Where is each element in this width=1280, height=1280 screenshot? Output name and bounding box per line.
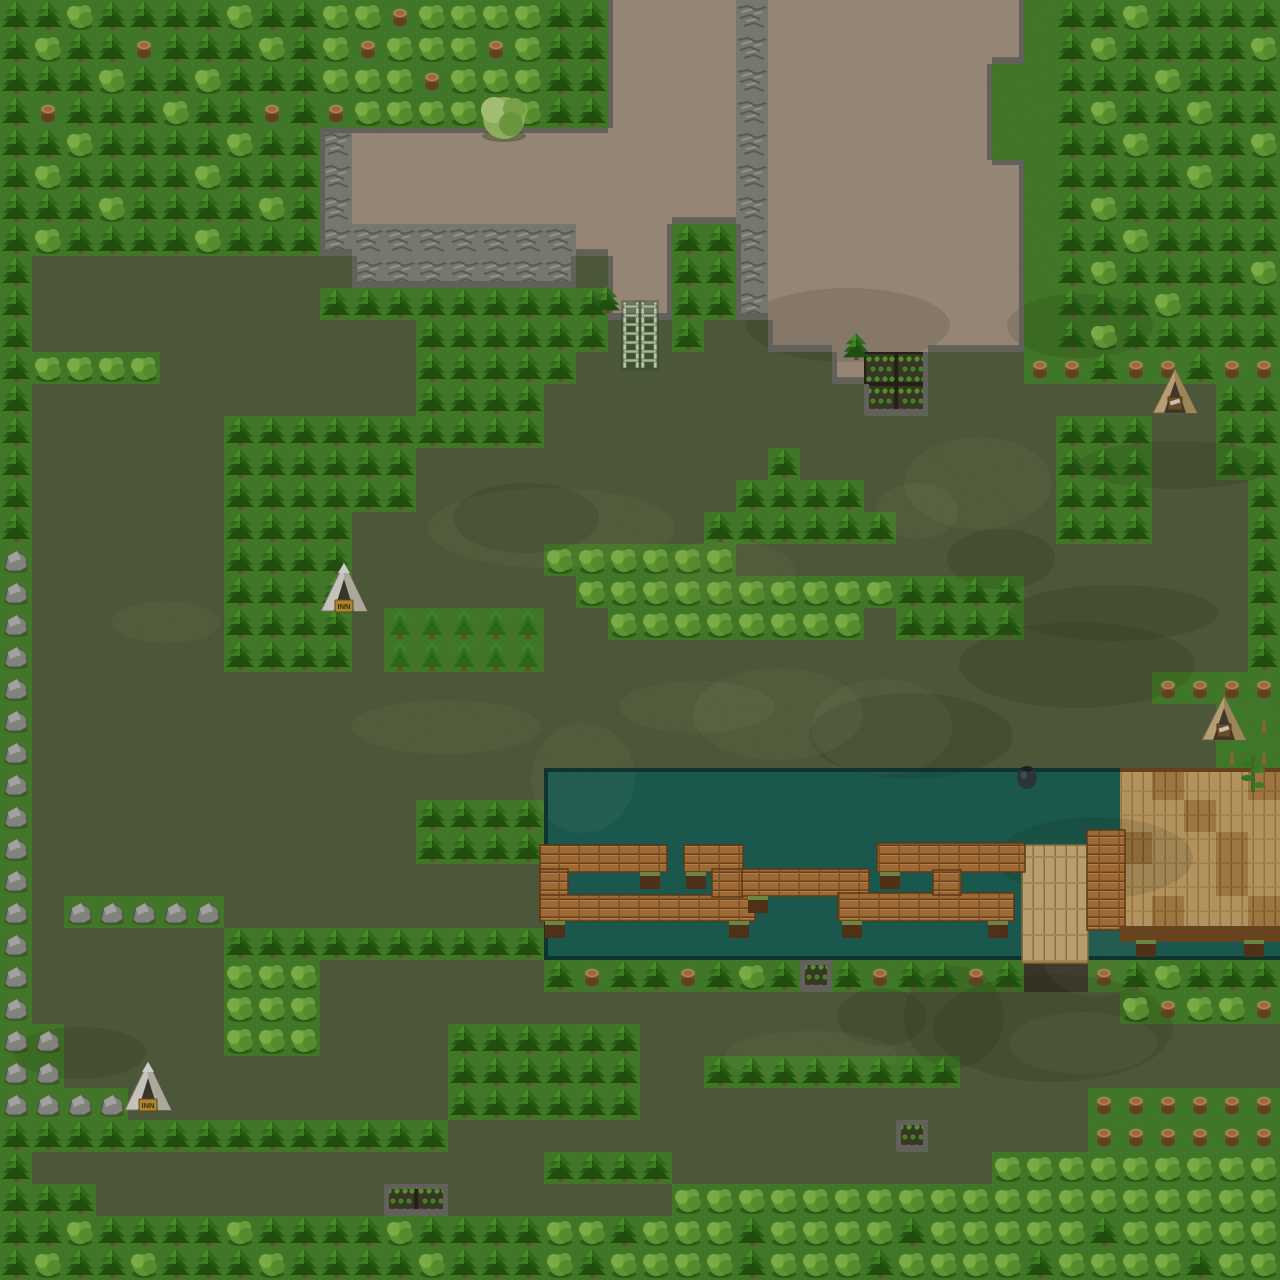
grain-texture-overlay (0, 0, 1280, 1280)
rpg-map-stage: INN INN (0, 0, 1280, 1280)
game-world-map[interactable]: INN INN (0, 0, 1280, 1280)
